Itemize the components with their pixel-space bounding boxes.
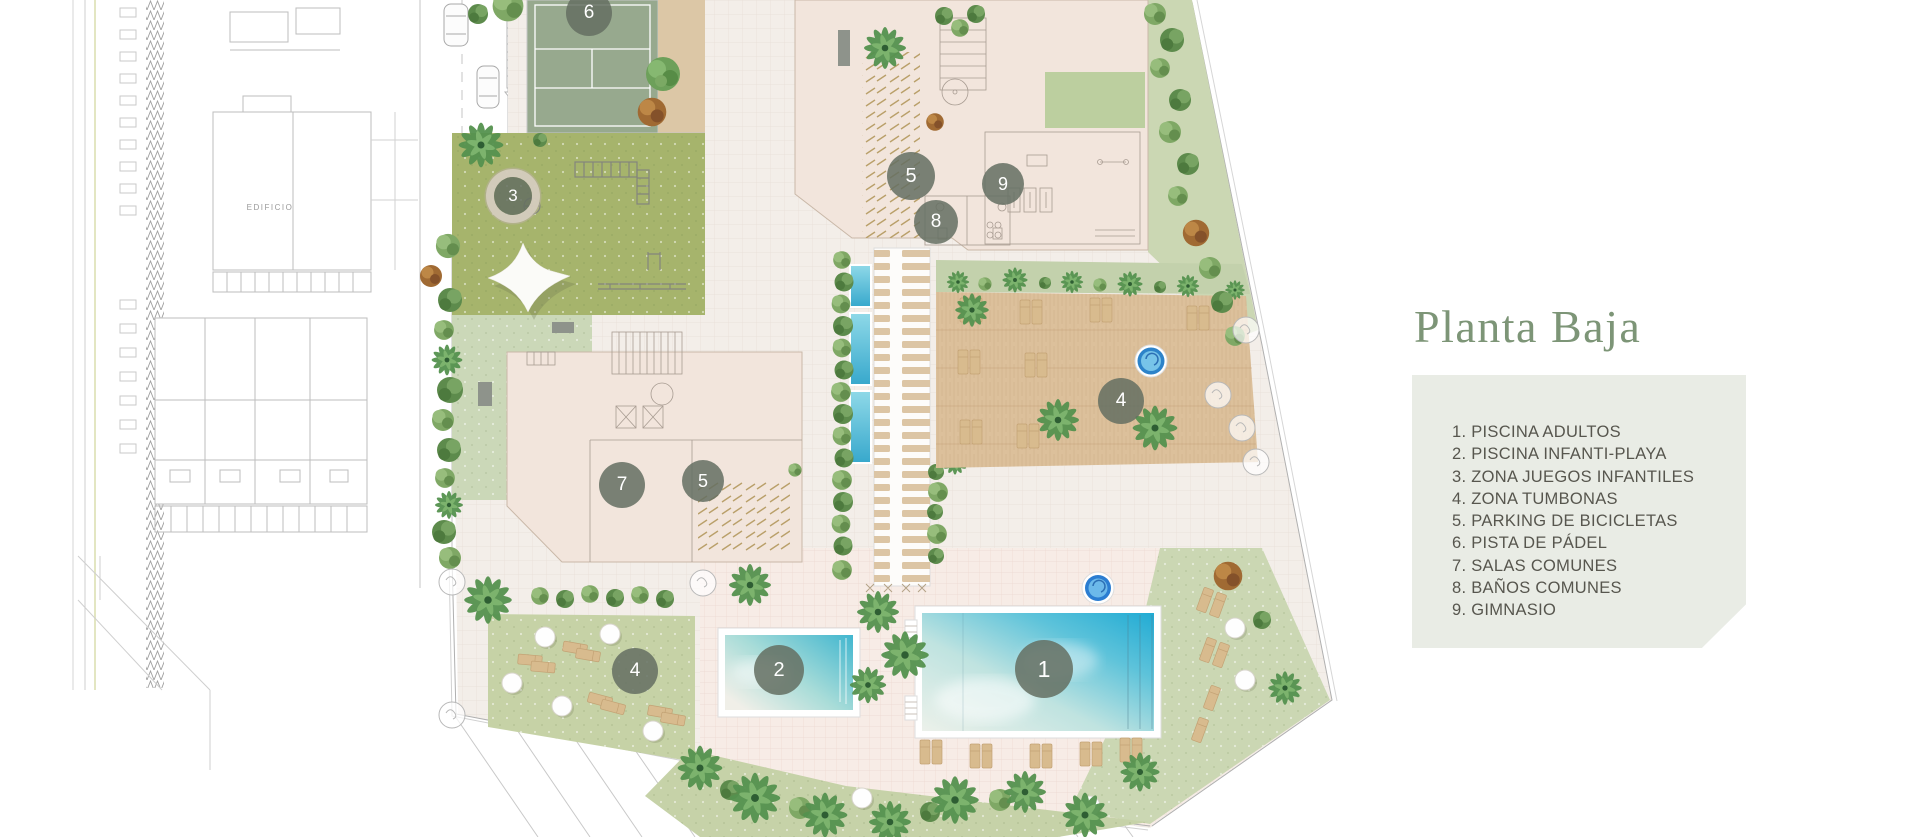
marker-8-banos-comunes[interactable]: 8 xyxy=(914,200,958,244)
marker-5-parking-bicicletas-oeste[interactable]: 5 xyxy=(682,460,724,502)
marker-4-zona-tumbonas-deck[interactable]: 4 xyxy=(1098,378,1144,424)
bike-racks xyxy=(862,52,920,238)
legend-item: 6. PISTA DE PÁDEL xyxy=(1452,532,1746,554)
legend-box: 1. PISCINA ADULTOS 2. PISCINA INFANTI-PL… xyxy=(1412,375,1746,648)
site-plan-illustration: EDIFICIO xyxy=(0,0,1340,837)
marker-2-piscina-infantil[interactable]: 2 xyxy=(754,645,804,695)
building-west xyxy=(507,332,802,562)
padel-court xyxy=(527,0,705,133)
bench xyxy=(552,322,574,333)
ground-floor-plan-page: EDIFICIO xyxy=(0,0,1920,837)
jacuzzi xyxy=(1082,572,1114,604)
adjacent-buildings-outline xyxy=(73,0,418,770)
legend-item: 3. ZONA JUEGOS INFANTILES xyxy=(1452,466,1746,488)
legend-item: 9. GIMNASIO xyxy=(1452,599,1746,621)
marker-3-zona-juegos-infantiles[interactable]: 3 xyxy=(494,177,532,215)
legend-item: 1. PISCINA ADULTOS xyxy=(1452,421,1746,443)
legend-item: 4. ZONA TUMBONAS xyxy=(1452,488,1746,510)
lap-pool xyxy=(850,265,871,463)
courtyard-garden xyxy=(1045,72,1145,128)
legend-item: 8. BAÑOS COMUNES xyxy=(1452,577,1746,599)
edificio-label: EDIFICIO xyxy=(247,203,294,212)
page-title: Planta Baja xyxy=(1414,300,1641,353)
sunlounger-deck xyxy=(936,292,1258,468)
legend-item: 7. SALAS COMUNES xyxy=(1452,555,1746,577)
car-icon xyxy=(477,66,499,108)
building-north xyxy=(795,0,1148,250)
bench xyxy=(478,382,492,406)
legend-item: 2. PISCINA INFANTI-PLAYA xyxy=(1452,443,1746,465)
spa-pool xyxy=(1135,345,1167,377)
marker-9-gimnasio[interactable]: 9 xyxy=(982,163,1024,205)
car-icon xyxy=(444,4,468,46)
marker-1-piscina-adultos[interactable]: 1 xyxy=(1015,640,1073,698)
boardwalk xyxy=(866,248,930,592)
marker-5-parking-bicicletas-norte[interactable]: 5 xyxy=(887,152,935,200)
legend-item: 5. PARKING DE BICICLETAS xyxy=(1452,510,1746,532)
marker-4-zona-tumbonas-cesped[interactable]: 4 xyxy=(612,648,658,694)
marker-7-salas-comunes[interactable]: 7 xyxy=(599,462,645,508)
